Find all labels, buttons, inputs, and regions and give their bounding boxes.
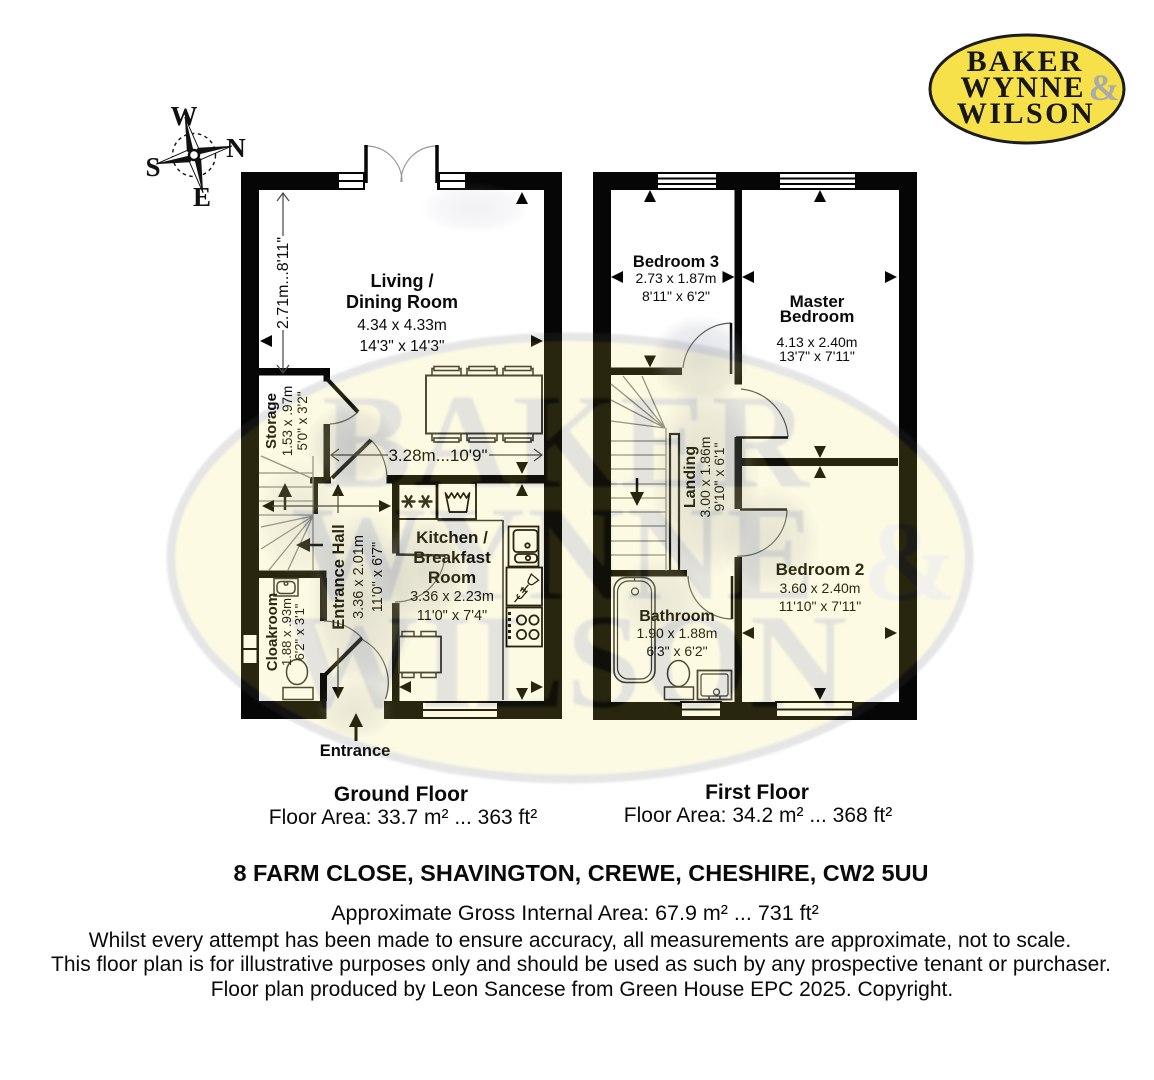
svg-text:First Floor: First Floor	[705, 781, 809, 804]
svg-text:WILSON: WILSON	[283, 587, 848, 737]
svg-text:8 FARM CLOSE, SHAVINGTON, CREW: 8 FARM CLOSE, SHAVINGTON, CREWE, CHESHIR…	[233, 860, 928, 886]
svg-text:Ground Floor: Ground Floor	[334, 783, 468, 806]
svg-text:W: W	[171, 101, 198, 131]
svg-text:WILSON: WILSON	[957, 97, 1095, 130]
svg-text:Approximate Gross Internal Are: Approximate Gross Internal Area: 67.9 m²…	[331, 901, 819, 925]
svg-text:Floor plan produced by Leon Sa: Floor plan produced by Leon Sancese from…	[211, 978, 953, 1001]
svg-text:4.34 x 4.33m: 4.34 x 4.33m	[357, 317, 447, 334]
svg-text:Dining Room: Dining Room	[346, 292, 458, 312]
svg-text:S: S	[145, 152, 160, 182]
svg-text:E: E	[193, 182, 211, 212]
svg-text:Living /: Living /	[371, 271, 434, 291]
svg-text:8'11" x 6'2": 8'11" x 6'2"	[642, 288, 710, 304]
svg-text:Floor Area: 33.7 m² ... 363 ft: Floor Area: 33.7 m² ... 363 ft²	[269, 806, 537, 829]
svg-text:13'7" x 7'11": 13'7" x 7'11"	[779, 348, 855, 364]
svg-text:Bedroom 3: Bedroom 3	[633, 253, 719, 271]
svg-text:2.71m...8'11": 2.71m...8'11"	[275, 237, 292, 329]
svg-text:This floor plan is for illustr: This floor plan is for illustrative purp…	[51, 953, 1111, 976]
svg-text:Floor Area: 34.2 m² ... 368 ft: Floor Area: 34.2 m² ... 368 ft²	[624, 804, 892, 827]
svg-text:2.73 x 1.87m: 2.73 x 1.87m	[636, 270, 717, 286]
svg-text:&: &	[863, 498, 958, 625]
svg-text:Whilst every attempt has been: Whilst every attempt has been made to en…	[89, 929, 1071, 952]
svg-text:Bedroom: Bedroom	[780, 307, 855, 326]
svg-text:N: N	[226, 133, 246, 163]
